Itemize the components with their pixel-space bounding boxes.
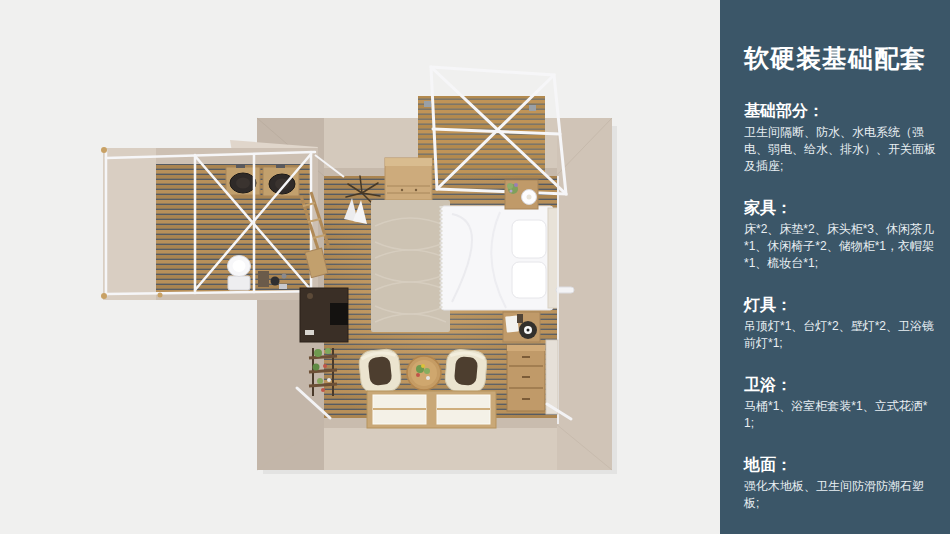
section-body: 马桶*1、浴室柜套装*1、立式花洒*1; [744, 398, 936, 432]
section-flooring: 地面： 强化木地板、卫生间防滑防潮石塑板; [744, 455, 936, 512]
rug [371, 200, 450, 332]
bed [441, 206, 558, 310]
slide: 软硬装基础配套 基础部分： 卫生间隔断、防水、水电系统（强电、弱电、给水、排水）… [0, 0, 950, 534]
section-body: 强化木地板、卫生间防滑防潮石塑板; [744, 478, 936, 512]
tea-table [407, 356, 441, 390]
headboard [548, 208, 558, 308]
section-body: 吊顶灯*1、台灯*2、壁灯*2、卫浴镜前灯*1; [744, 318, 936, 352]
panel-title: 软硬装基础配套 [744, 42, 936, 75]
pergola-bracket [529, 105, 536, 111]
frame-cap [101, 293, 107, 299]
info-panel: 软硬装基础配套 基础部分： 卫生间隔断、防水、水电系统（强电、弱电、给水、排水）… [720, 0, 950, 534]
section-heading: 家具： [744, 198, 936, 218]
book [505, 315, 519, 332]
pillow [512, 220, 546, 258]
toilet [228, 256, 251, 291]
bathroom-annex [101, 140, 330, 300]
section-basics: 基础部分： 卫生间隔断、防水、水电系统（强电、弱电、给水、排水）、开关面板及插座… [744, 101, 936, 175]
section-lighting: 灯具： 吊顶灯*1、台灯*2、壁灯*2、卫浴镜前灯*1; [744, 295, 936, 352]
desk-tv-stand [300, 288, 348, 342]
frame-cap [101, 147, 107, 153]
annex-open-deck [103, 148, 156, 300]
frame-cap [158, 293, 163, 298]
armchair-left [358, 348, 402, 394]
floorplan-area [0, 0, 720, 534]
section-heading: 基础部分： [744, 101, 936, 121]
dresser [507, 345, 545, 411]
pillow [512, 262, 546, 298]
floorplan-render [0, 0, 720, 534]
nightstand-bottom [503, 312, 540, 342]
section-heading: 卫浴： [744, 375, 936, 395]
section-bathroom: 卫浴： 马桶*1、浴室柜套装*1、立式花洒*1; [744, 375, 936, 432]
section-body: 床*2、床垫*2、床头柜*3、休闲茶几*1、休闲椅子*2、储物柜*1，衣帽架*1… [744, 221, 936, 272]
nightstand-top [505, 180, 538, 209]
section-heading: 灯具： [744, 295, 936, 315]
wardrobe [385, 158, 432, 200]
section-body: 卫生间隔断、防水、水电系统（强电、弱电、给水、排水）、开关面板及插座; [744, 124, 936, 175]
floor-windows [367, 391, 496, 428]
tv-screen [330, 303, 348, 325]
section-furniture: 家具： 床*2、床垫*2、床头柜*3、休闲茶几*1、休闲椅子*2、储物柜*1，衣… [744, 198, 936, 272]
section-heading: 地面： [744, 455, 936, 475]
armchair-right [444, 348, 488, 393]
pergola-bracket [424, 101, 431, 107]
